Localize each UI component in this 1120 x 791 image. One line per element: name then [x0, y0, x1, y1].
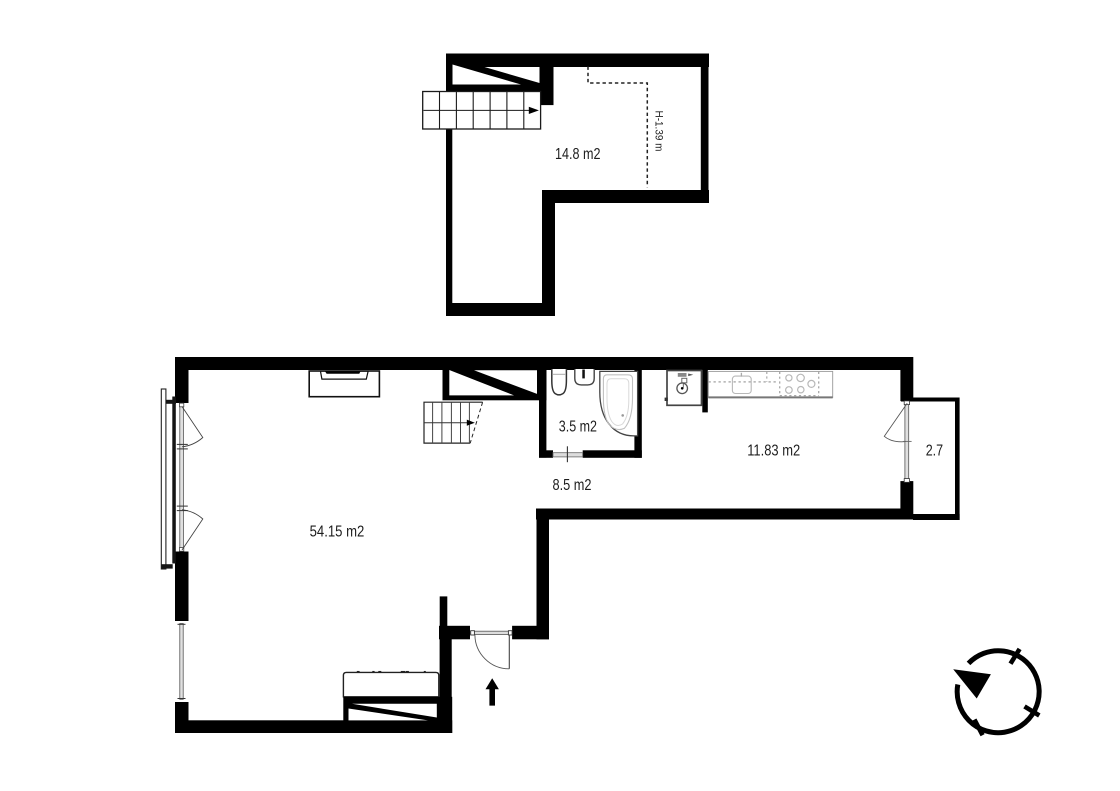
svg-text:2.7: 2.7: [926, 442, 943, 459]
svg-text:8.5 m2: 8.5 m2: [553, 477, 592, 494]
svg-text:3.5 m2: 3.5 m2: [559, 418, 597, 435]
svg-text:54.15 m2: 54.15 m2: [310, 523, 365, 540]
svg-text:14.8 m2: 14.8 m2: [555, 146, 601, 163]
svg-text:H-1.39 m: H-1.39 m: [652, 111, 664, 152]
svg-text:11.83 m2: 11.83 m2: [747, 443, 800, 460]
